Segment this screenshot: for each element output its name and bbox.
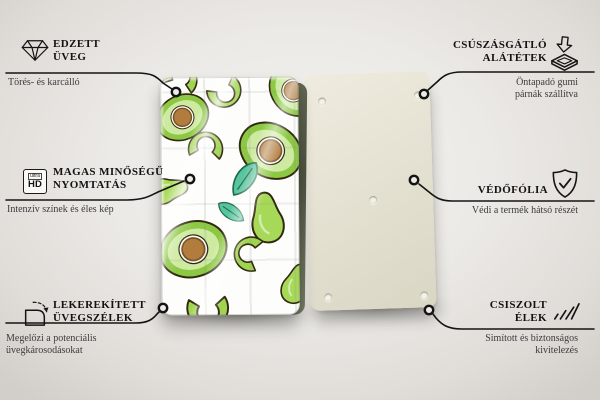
rubber-pad — [369, 196, 377, 204]
diamond-icon — [20, 37, 50, 64]
callout-subtitle: Törés- és karcálló — [8, 77, 80, 89]
callout-subtitle: Intenzív színek és éles kép — [7, 204, 114, 216]
callout-subtitle-line: üvegkárosodásokat — [6, 345, 97, 357]
callout-title-line: NYOMTATÁS — [53, 179, 163, 192]
callout-subtitle-line: kivitelezés — [485, 345, 578, 357]
polished-edges-callout — [552, 297, 580, 329]
callout-subtitle-line: Megelőzi a potenciális — [6, 333, 97, 345]
callout-title-line: ALÁTÉTEK — [453, 52, 547, 65]
callout-title-line: ÉLEK — [490, 312, 547, 325]
rubber-pad — [318, 97, 326, 105]
callout-subtitle-line: Öntapadó gumi — [515, 77, 578, 89]
anti-slip-pad-icon — [549, 35, 580, 72]
ultra-hd-icon-label-big: HD — [28, 180, 42, 190]
callout-subtitle: Védi a termék hátsó részét — [472, 205, 578, 217]
callout-title-line: ÜVEG — [53, 51, 100, 64]
callout-title-line: ÜVEGSZÉLEK — [53, 312, 146, 325]
anti-slip-callout — [549, 35, 580, 77]
callout-title-line: LEKEREKÍTETT — [53, 299, 146, 312]
rounded-edges-callout — [21, 298, 49, 333]
rubber-pad — [420, 291, 428, 299]
callout-title-line: CSÚSZÁSGÁTLÓ — [453, 39, 547, 52]
product-infographic-canvas: EDZETT ÜVEG Törés- és karcálló ultra HD … — [0, 0, 600, 400]
shield-check-icon — [551, 168, 579, 199]
tempered-glass-callout — [20, 37, 50, 69]
callout-title-line: VÉDŐFÓLIA — [478, 184, 548, 197]
glass-shine-overlay — [160, 77, 300, 316]
back-board — [307, 78, 436, 311]
callout-subtitle-line: Simított és biztonságos — [485, 333, 578, 345]
ultra-hd-icon: ultra HD — [23, 169, 47, 194]
protective-film-callout — [551, 168, 579, 204]
rubber-pad — [414, 91, 422, 99]
rubber-pad — [324, 293, 332, 301]
callout-title-line: EDZETT — [53, 38, 100, 51]
callout-subtitle-line: párnák szállítva — [515, 89, 578, 101]
front-board-avocado — [160, 77, 300, 316]
polished-edges-icon — [552, 297, 580, 324]
callout-title-line: MAGAS MINŐSÉGŰ — [53, 166, 163, 179]
rounded-corner-icon — [21, 298, 49, 328]
callout-title-line: CSISZOLT — [490, 299, 547, 312]
